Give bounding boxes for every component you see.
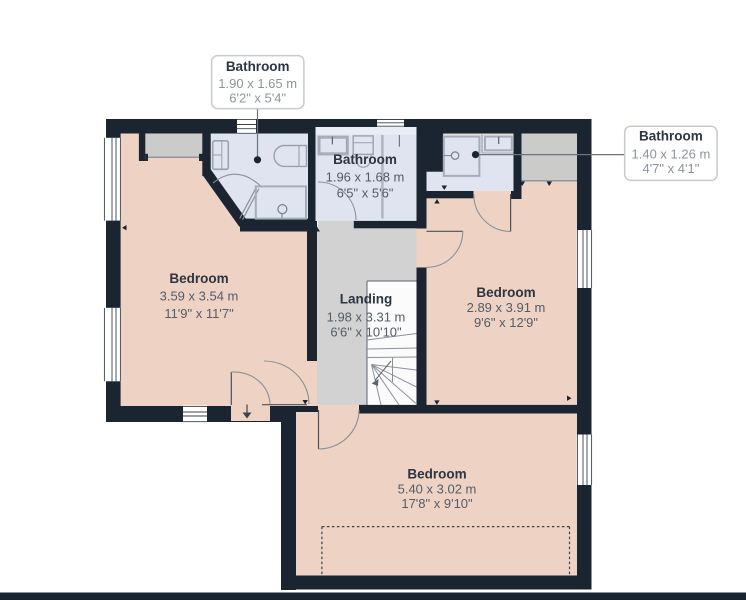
svg-text:6'2" x 5'4": 6'2" x 5'4"	[229, 91, 286, 106]
svg-text:6'6" x 10'10": 6'6" x 10'10"	[330, 325, 402, 340]
svg-text:Landing: Landing	[340, 292, 393, 307]
svg-text:3.59 x 3.54 m: 3.59 x 3.54 m	[160, 289, 239, 304]
svg-text:Bathroom: Bathroom	[639, 129, 703, 144]
svg-text:Bedroom: Bedroom	[476, 285, 535, 300]
svg-text:1.40 x 1.26 m: 1.40 x 1.26 m	[632, 147, 711, 162]
svg-text:4'7" x 4'1": 4'7" x 4'1"	[642, 161, 699, 176]
svg-text:Bedroom: Bedroom	[169, 271, 228, 286]
svg-text:Bathroom: Bathroom	[333, 152, 397, 167]
svg-text:5.40 x 3.02 m: 5.40 x 3.02 m	[398, 482, 477, 497]
svg-text:Bathroom: Bathroom	[226, 59, 290, 74]
svg-text:6'5" x 5'6": 6'5" x 5'6"	[337, 186, 394, 201]
svg-text:17'8" x 9'10": 17'8" x 9'10"	[401, 496, 473, 511]
svg-text:1.90 x 1.65 m: 1.90 x 1.65 m	[218, 76, 297, 91]
svg-text:1.98 x 3.31 m: 1.98 x 3.31 m	[327, 310, 406, 325]
svg-text:1.96 x 1.68 m: 1.96 x 1.68 m	[326, 170, 405, 185]
svg-text:11'9" x 11'7": 11'9" x 11'7"	[164, 306, 234, 321]
svg-text:9'6" x 12'9": 9'6" x 12'9"	[474, 315, 538, 330]
svg-text:2.89 x 3.91 m: 2.89 x 3.91 m	[467, 300, 546, 315]
svg-text:Bedroom: Bedroom	[407, 467, 466, 482]
